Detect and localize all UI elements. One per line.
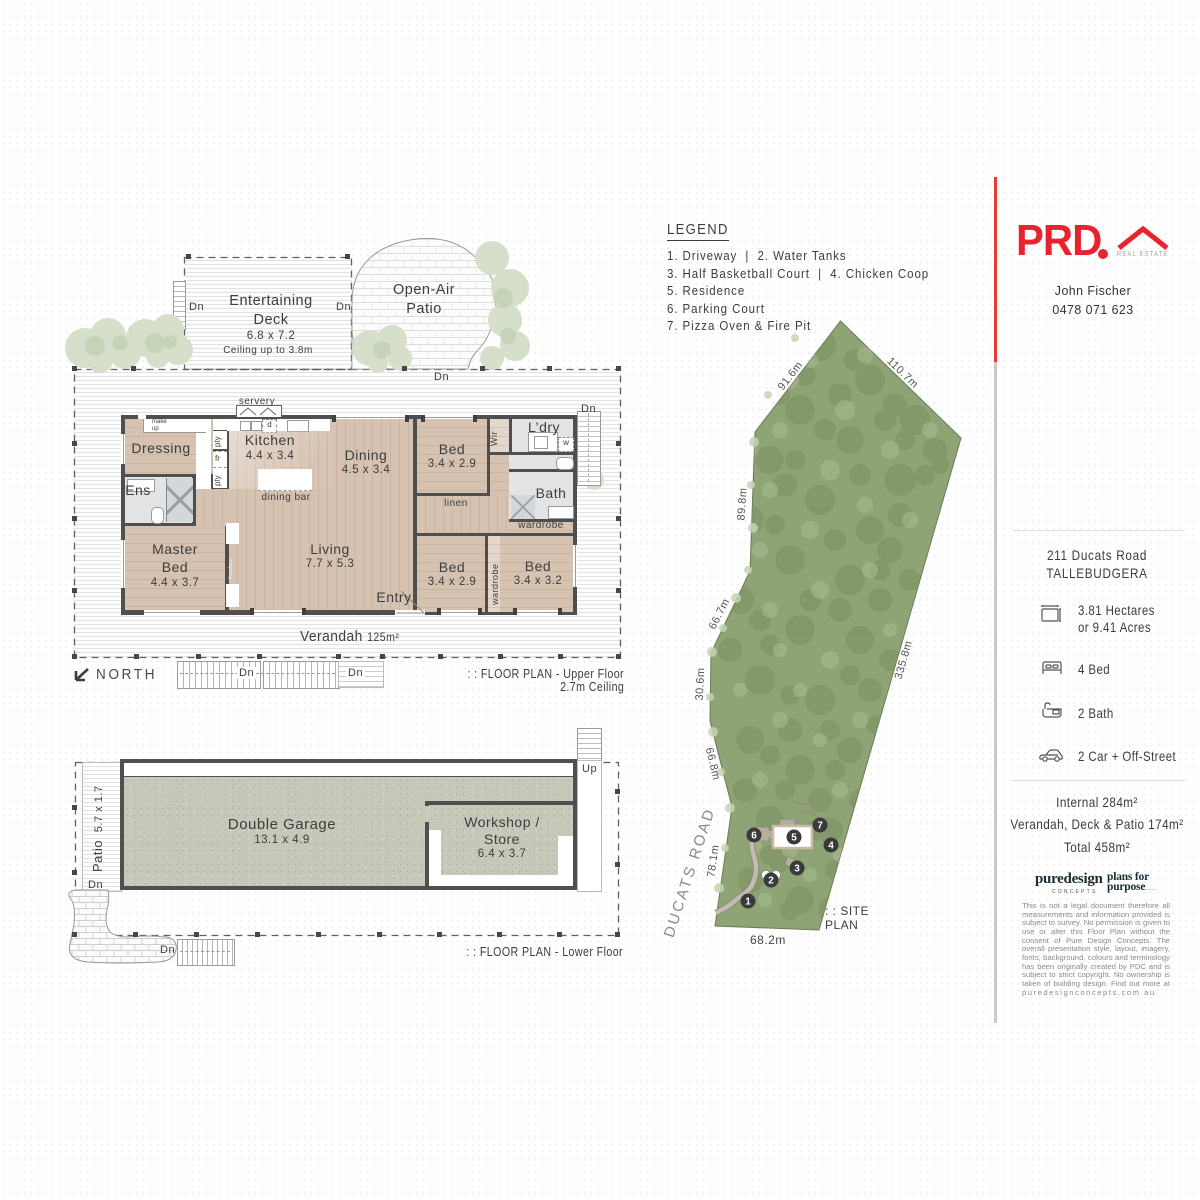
svg-text:6: 6: [751, 831, 757, 842]
svg-text:1: 1: [745, 897, 751, 908]
svg-text:3: 3: [794, 864, 800, 875]
svg-text:4: 4: [828, 841, 834, 852]
svg-text:2: 2: [768, 876, 774, 887]
svg-text:5: 5: [791, 833, 797, 844]
svg-text:7: 7: [817, 821, 823, 832]
